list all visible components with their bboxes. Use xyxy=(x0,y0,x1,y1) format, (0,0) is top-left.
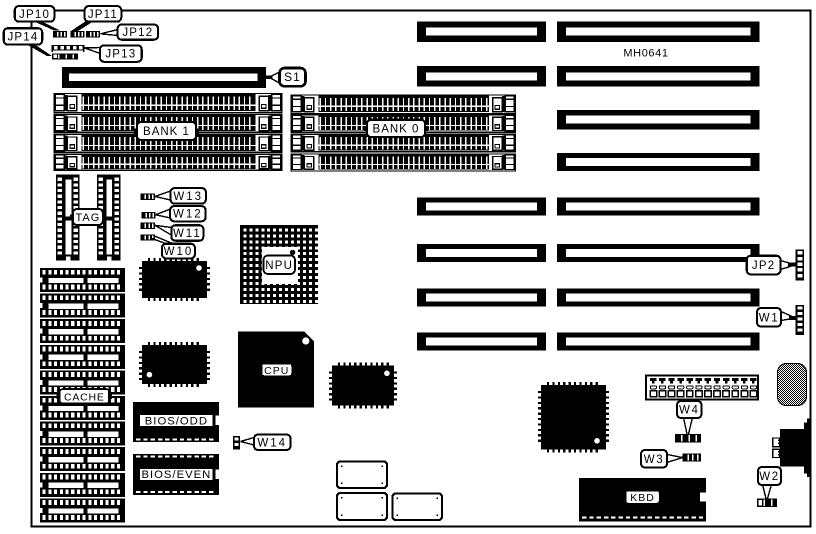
svg-text:MH0641: MH0641 xyxy=(623,48,668,60)
svg-text:JP14: JP14 xyxy=(7,31,38,43)
svg-text:BANK 0: BANK 0 xyxy=(373,123,420,135)
svg-text:JP12: JP12 xyxy=(122,27,153,39)
svg-text:W14: W14 xyxy=(257,437,287,449)
svg-text:W13: W13 xyxy=(173,191,203,203)
svg-text:CPU: CPU xyxy=(264,365,289,377)
svg-text:JP2: JP2 xyxy=(752,260,775,272)
svg-text:W3: W3 xyxy=(644,454,664,466)
svg-text:CACHE: CACHE xyxy=(64,391,105,403)
svg-text:W1: W1 xyxy=(759,312,779,324)
svg-text:W2: W2 xyxy=(759,471,779,483)
svg-text:BANK 1: BANK 1 xyxy=(143,126,190,138)
svg-text:W10: W10 xyxy=(164,246,194,258)
svg-text:W12: W12 xyxy=(173,209,203,221)
svg-text:KBD: KBD xyxy=(630,492,655,504)
svg-text:JP13: JP13 xyxy=(105,49,136,61)
svg-text:JP11: JP11 xyxy=(88,9,118,21)
svg-text:W4: W4 xyxy=(679,405,699,417)
svg-text:BIOS/ODD: BIOS/ODD xyxy=(145,415,208,427)
svg-text:NPU: NPU xyxy=(265,260,293,272)
svg-text:W11: W11 xyxy=(173,228,202,240)
svg-text:BIOS/EVEN: BIOS/EVEN xyxy=(141,469,211,481)
svg-text:S1: S1 xyxy=(284,70,301,84)
svg-text:TAG: TAG xyxy=(76,212,101,224)
svg-text:JP10: JP10 xyxy=(19,9,50,21)
